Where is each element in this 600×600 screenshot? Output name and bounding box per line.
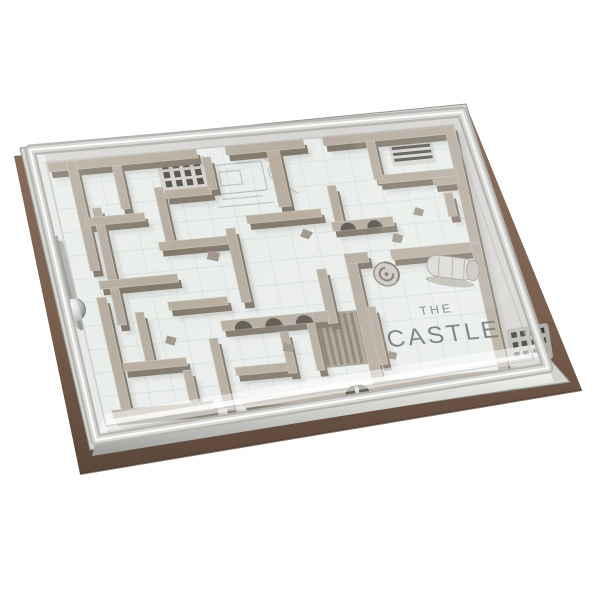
castle-maze-puzzle-render: THE CASTLE	[0, 0, 600, 600]
product-photo: THE CASTLE	[0, 0, 600, 600]
